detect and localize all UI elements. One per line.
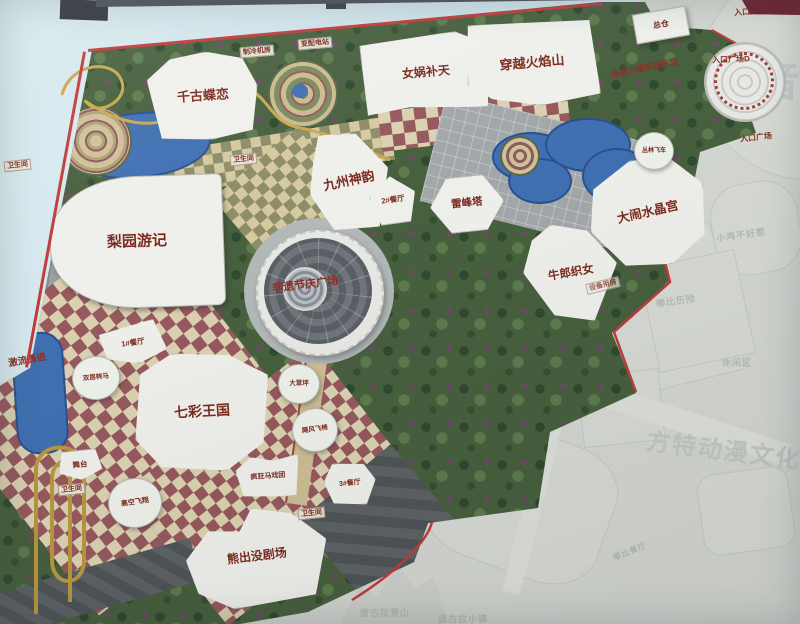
building-label: 总仓	[652, 19, 669, 30]
building-label: 女娲补天	[402, 64, 451, 81]
ride-conglin-feiche: 丛林飞车	[634, 132, 674, 170]
building-label: 2#餐厅	[381, 194, 405, 205]
faded-label-xiaozhen: 唐古拉小镇	[438, 612, 488, 624]
ride-label: 双层转马	[83, 373, 110, 382]
ride-label: 丛林飞车	[642, 148, 666, 154]
building-label: 1#餐厅	[121, 337, 145, 348]
faded-dubi-restaurant	[695, 464, 798, 558]
ride-label: 大草坪	[289, 381, 309, 388]
frame-corner-maroon	[742, 0, 800, 15]
building-liyuan-youji: 梨园游记	[48, 173, 227, 311]
building-label: 舞台	[72, 460, 88, 470]
building-label: 雷峰塔	[451, 197, 484, 212]
park-map-photo: 方特动漫文化科技 音 储物间 超级大水车 魔法城堡 小鸡不好惹 嘟比历险 休闲区…	[0, 0, 800, 624]
building-label: 大闹水晶宫	[616, 199, 680, 226]
building-label: 梨园游记	[107, 233, 168, 252]
faded-label-xiuxianqu: 休闲区	[722, 356, 752, 369]
faded-label-xueshan: 唐古拉雪山	[360, 606, 410, 619]
building-label: 熊出没剧场	[226, 547, 287, 567]
spiral-mound-pond	[292, 84, 308, 98]
building-label: 3#餐厅	[339, 479, 361, 489]
ride-label: 飓风飞椅	[302, 425, 329, 435]
building-label: 疯狂马戏团	[250, 472, 285, 482]
faded-label-dubicanting: 嘟比餐厅	[611, 540, 648, 564]
building-label: 七彩王国	[174, 403, 231, 421]
label-entrance-d: 入口广场D	[712, 53, 750, 65]
ride-dacaoping: 大草坪	[278, 364, 320, 404]
building-label: 千古蝶恋	[177, 87, 230, 105]
waterwheel-island	[500, 136, 540, 176]
building-label: 穿越火焰山	[499, 53, 565, 73]
ride-label: 高空飞翔	[121, 497, 150, 508]
building-label: 牛郎织女	[547, 263, 594, 283]
building-label: 九州神韵	[322, 169, 376, 194]
